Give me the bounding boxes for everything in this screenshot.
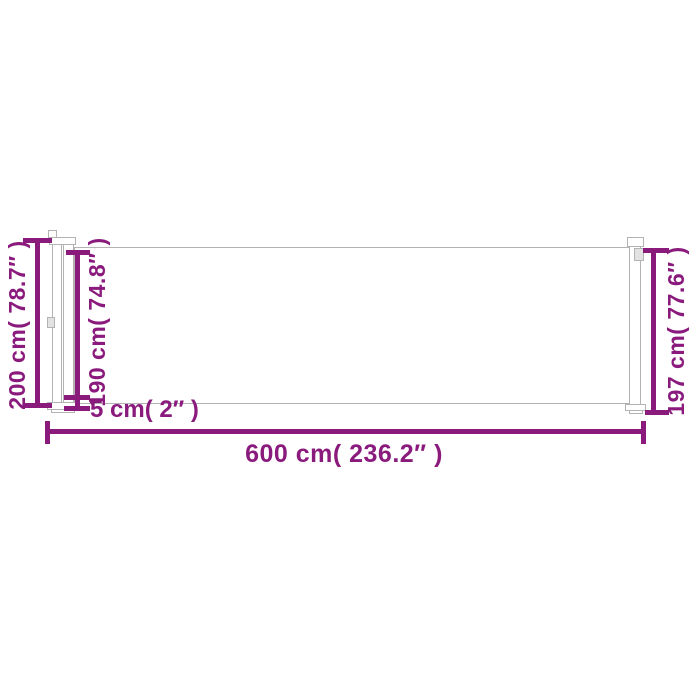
bar-tube — [629, 246, 641, 405]
dim-height-total-label: 200 cm( 78.7″ ) — [3, 220, 31, 430]
dim-height-total-line — [35, 240, 40, 408]
fabric-panel — [74, 247, 631, 404]
post-tube-inner — [63, 244, 74, 403]
bar-base-foot — [629, 410, 643, 414]
dim-length-line — [47, 429, 644, 434]
dim-length-cap-left — [45, 421, 50, 444]
post-wall-bracket — [47, 317, 55, 328]
dim-length-label: 600 cm( 236.2″ ) — [194, 440, 494, 469]
dim-height-fabric-line — [75, 252, 80, 398]
diagram-canvas: 200 cm( 78.7″ ) 190 cm( 74.8″ ) 5 cm( 2″… — [0, 0, 700, 700]
dim-gap-cap-bottom — [64, 406, 90, 411]
dim-length-cap-right — [641, 421, 646, 444]
dim-height-right-label: 197 cm( 77.6″ ) — [662, 226, 690, 436]
dim-gap-label: 5 cm( 2″ ) — [90, 396, 199, 424]
dim-height-right-line — [651, 250, 656, 414]
